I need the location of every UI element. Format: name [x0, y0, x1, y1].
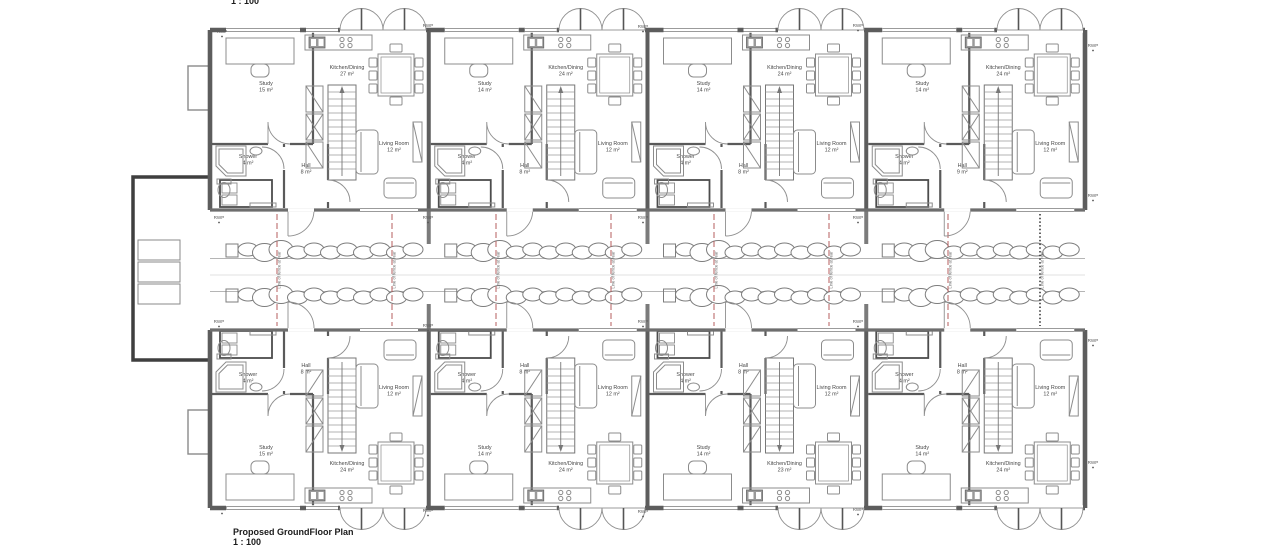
room-area: 8 m²: [519, 170, 530, 176]
room-label: Living Room: [598, 385, 628, 391]
fence-label: Line of fence at rear: [1040, 251, 1045, 289]
room-area: 12 m²: [825, 148, 839, 154]
scale-fragment: 1 : 100: [231, 0, 259, 6]
room-label: Study: [259, 445, 273, 451]
room-area: 24 m²: [559, 468, 573, 474]
room-label: Study: [697, 445, 711, 451]
room-label: Study: [478, 445, 492, 451]
plan-scale: 1 : 100: [233, 537, 354, 547]
rwp-label: RWP: [423, 323, 434, 328]
room-area: 14 m²: [697, 88, 711, 94]
room-label: Shower: [458, 372, 476, 378]
room-area: 12 m²: [387, 392, 401, 398]
room-label: Hall: [958, 363, 967, 369]
room-label: Hall: [520, 363, 529, 369]
room-area: 4 m²: [899, 161, 910, 167]
room-area: 24 m²: [559, 72, 573, 78]
room-label: Kitchen/Dining: [548, 461, 583, 467]
room-label: Study: [915, 81, 929, 87]
rwp-label: RWP: [1088, 338, 1099, 343]
floor-plan-page: Line of fence at rearLine of fence at re…: [0, 0, 1280, 557]
room-label: Kitchen/Dining: [767, 65, 802, 71]
room-area: 12 m²: [606, 148, 620, 154]
room-label: Shower: [239, 372, 257, 378]
room-label: Study: [478, 81, 492, 87]
room-label: Living Room: [379, 141, 409, 147]
rwp-label: RWP: [853, 507, 864, 512]
room-area: 24 m²: [996, 468, 1010, 474]
room-area: 14 m²: [697, 452, 711, 458]
rwp-label: RWP: [638, 24, 649, 29]
rwp-label: RWP: [1088, 43, 1099, 48]
room-label: Living Room: [379, 385, 409, 391]
rwp-label: RWP: [217, 506, 228, 511]
rwp-label: RWP: [853, 215, 864, 220]
rwp-label: RWP: [217, 29, 228, 34]
rwp-label: RWP: [638, 509, 649, 514]
room-label: Living Room: [1035, 385, 1065, 391]
fence-label: Line of fence at rear: [829, 251, 834, 289]
room-area: 12 m²: [387, 148, 401, 154]
room-label: Study: [259, 81, 273, 87]
room-label: Study: [915, 445, 929, 451]
room-area: 12 m²: [606, 392, 620, 398]
room-label: Hall: [301, 363, 310, 369]
room-label: Hall: [739, 363, 748, 369]
room-area: 14 m²: [478, 88, 492, 94]
room-area: 27 m²: [340, 72, 354, 78]
room-label: Kitchen/Dining: [767, 461, 802, 467]
room-area: 24 m²: [778, 72, 792, 78]
room-area: 8 m²: [301, 170, 312, 176]
room-area: 15 m²: [259, 452, 273, 458]
room-area: 24 m²: [340, 468, 354, 474]
fence-label: Line of fence at rear: [948, 251, 953, 289]
title-block: Proposed GroundFloor Plan 1 : 100: [233, 527, 354, 547]
rwp-label: RWP: [214, 319, 225, 324]
room-area: 12 m²: [1043, 392, 1057, 398]
cropped-scale-text: 1 : 100: [231, 0, 259, 6]
room-area: 14 m²: [915, 88, 929, 94]
rwp-label: RWP: [638, 319, 649, 324]
room-label: Kitchen/Dining: [330, 461, 365, 467]
room-area: 14 m²: [915, 452, 929, 458]
rwp-label: RWP: [638, 215, 649, 220]
room-area: 23 m²: [778, 468, 792, 474]
room-label: Living Room: [598, 141, 628, 147]
room-area: 14 m²: [478, 452, 492, 458]
rwp-label: RWP: [214, 215, 225, 220]
room-area: 8 m²: [738, 170, 749, 176]
room-area: 24 m²: [996, 72, 1010, 78]
room-area: 9 m²: [957, 170, 968, 176]
rwp-label: RWP: [853, 319, 864, 324]
room-label: Kitchen/Dining: [330, 65, 365, 71]
rwp-label: RWP: [1088, 460, 1099, 465]
room-label: Kitchen/Dining: [986, 65, 1021, 71]
rwp-label: RWP: [423, 23, 434, 28]
fence-label: Line of fence at rear: [611, 251, 616, 289]
fence-label: Line of fence at rear: [277, 251, 282, 289]
floor-plan-canvas: Line of fence at rearLine of fence at re…: [0, 0, 1280, 557]
room-label: Study: [697, 81, 711, 87]
room-label: Living Room: [817, 385, 847, 391]
rwp-label: RWP: [423, 215, 434, 220]
room-area: 4 m²: [243, 161, 254, 167]
room-area: 15 m²: [259, 88, 273, 94]
rwp-label: RWP: [423, 508, 434, 513]
room-area: 12 m²: [825, 392, 839, 398]
room-label: Kitchen/Dining: [986, 461, 1021, 467]
room-area: 4 m²: [461, 161, 472, 167]
plan-title: Proposed GroundFloor Plan: [233, 527, 354, 537]
room-label: Living Room: [817, 141, 847, 147]
fence-label: Line of fence at rear: [714, 251, 719, 289]
rwp-label: RWP: [1088, 193, 1099, 198]
room-area: 4 m²: [680, 161, 691, 167]
fence-label: Line of fence at rear: [496, 251, 501, 289]
room-label: Shower: [676, 372, 694, 378]
fence-label: Line of fence at rear: [392, 251, 397, 289]
room-label: Living Room: [1035, 141, 1065, 147]
rwp-label: RWP: [853, 23, 864, 28]
room-label: Kitchen/Dining: [548, 65, 583, 71]
room-area: 12 m²: [1043, 148, 1057, 154]
room-label: Shower: [895, 372, 913, 378]
